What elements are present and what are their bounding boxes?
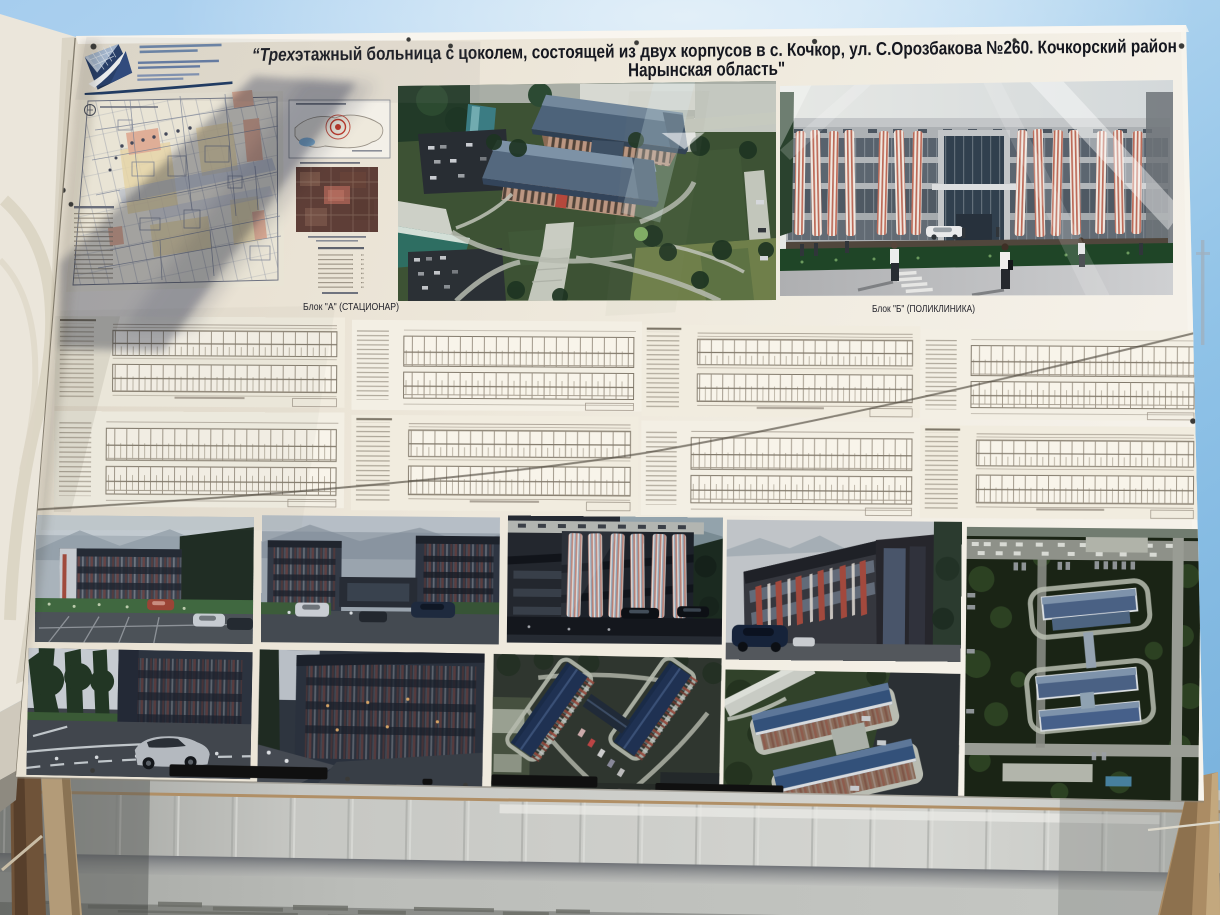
- svg-text:Блок "Б" (ПОЛИКЛИНИКА): Блок "Б" (ПОЛИКЛИНИКА): [872, 303, 975, 315]
- svg-text:Нарынская область": Нарынская область": [628, 59, 785, 82]
